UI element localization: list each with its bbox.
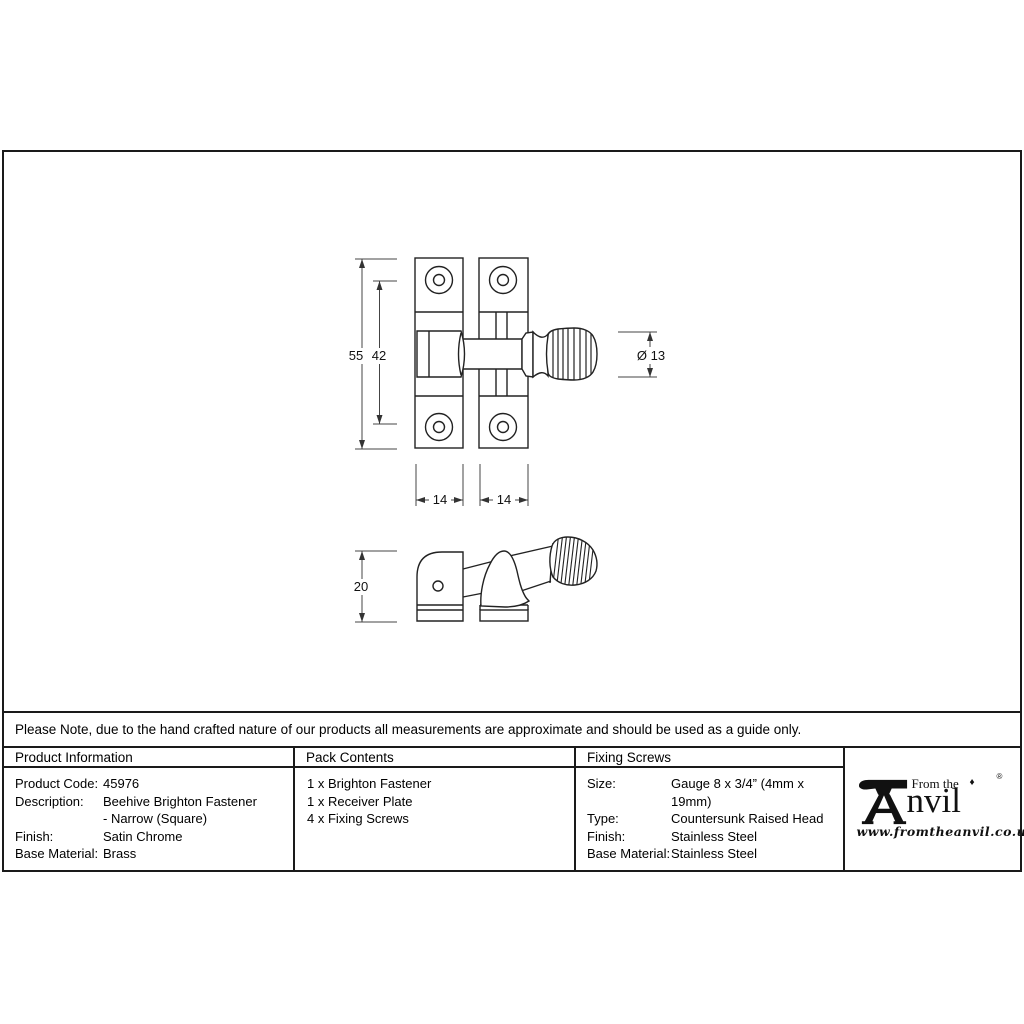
latch-handle (417, 331, 465, 377)
list-item: 1 x Receiver Plate (307, 793, 574, 811)
field-value: Countersunk Raised Head (671, 810, 823, 828)
from-the-anvil-logo: nvil From the ♦ ® www.fromtheanvil.co.uk (857, 776, 1009, 842)
field-label (15, 810, 103, 828)
field-label: Type: (587, 810, 671, 828)
logo-tagline: From the (912, 776, 959, 792)
table-row: Type: Countersunk Raised Head (587, 810, 843, 828)
field-value: Stainless Steel (671, 845, 757, 863)
beehive-knob-front (547, 328, 598, 380)
dim-plate-width-right: 14 (497, 492, 511, 507)
dim-hole-spacing: 42 (372, 348, 386, 363)
field-value: Stainless Steel (671, 828, 757, 846)
info-table: Product Information Pack Contents Fixing… (2, 748, 1022, 872)
fixing-screws-cell: Size: Gauge 8 x 3/4” (4mm x 19mm) Type: … (576, 768, 845, 870)
dim-overall-height: 55 (349, 348, 363, 363)
technical-drawing-frame: 55 42 Ø 13 14 14 20 (2, 150, 1022, 713)
table-row: Finish: Satin Chrome (15, 828, 293, 846)
note-text: Please Note, due to the hand crafted nat… (15, 722, 801, 737)
table-row: Size: Gauge 8 x 3/4” (4mm x 19mm) (587, 775, 843, 810)
brand-logo-cell: nvil From the ♦ ® www.fromtheanvil.co.uk (845, 748, 1020, 870)
dim-side-height: 20 (354, 579, 368, 594)
field-label: Product Code: (15, 775, 103, 793)
front-view (415, 258, 597, 448)
logo-website: www.fromtheanvil.co.uk (857, 824, 1009, 839)
latch-arm (462, 339, 522, 369)
table-row: - Narrow (Square) (15, 810, 293, 828)
header-pack-contents: Pack Contents (295, 748, 576, 768)
table-row: Base Material: Brass (15, 845, 293, 863)
field-value: Beehive Brighton Fastener (103, 793, 257, 811)
header-product-information: Product Information (4, 748, 295, 768)
registered-mark: ® (997, 772, 1003, 781)
field-value: Satin Chrome (103, 828, 182, 846)
field-label: Base Material: (15, 845, 103, 863)
dim-plate-width-left: 14 (433, 492, 447, 507)
note-bar: Please Note, due to the hand crafted nat… (2, 713, 1022, 748)
table-row: Product Code: 45976 (15, 775, 293, 793)
receiver-base (480, 610, 528, 621)
product-spec-sheet: 55 42 Ø 13 14 14 20 Please Note, due to … (0, 0, 1024, 1024)
table-row: Base Material: Stainless Steel (587, 845, 843, 863)
dim-knob-diameter: Ø 13 (637, 348, 665, 363)
header-fixing-screws: Fixing Screws (576, 748, 845, 768)
technical-drawing: 55 42 Ø 13 14 14 20 (2, 150, 1022, 713)
list-item: 1 x Brighton Fastener (307, 775, 574, 793)
table-row: Description: Beehive Brighton Fastener (15, 793, 293, 811)
field-value: Brass (103, 845, 136, 863)
pack-contents-cell: 1 x Brighton Fastener 1 x Receiver Plate… (295, 768, 576, 870)
field-value: 45976 (103, 775, 139, 793)
side-view (417, 532, 597, 621)
product-information-cell: Product Code: 45976 Description: Beehive… (4, 768, 295, 870)
diamond-icon: ♦ (970, 777, 975, 788)
anvil-icon (859, 778, 909, 826)
field-value: Gauge 8 x 3/4” (4mm x 19mm) (671, 775, 843, 810)
field-value: - Narrow (Square) (103, 810, 207, 828)
field-label: Size: (587, 775, 671, 810)
field-label: Finish: (15, 828, 103, 846)
list-item: 4 x Fixing Screws (307, 810, 574, 828)
field-label: Description: (15, 793, 103, 811)
field-label: Base Material: (587, 845, 671, 863)
field-label: Finish: (587, 828, 671, 846)
table-row: Finish: Stainless Steel (587, 828, 843, 846)
